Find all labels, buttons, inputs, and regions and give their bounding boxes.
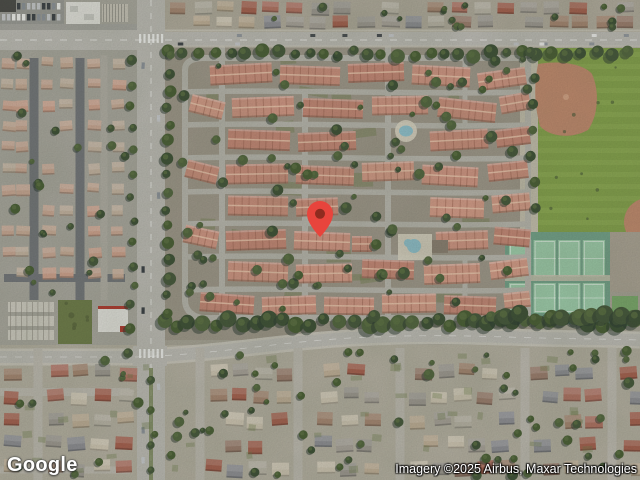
imagery-attribution: Imagery ©2025 Airbus, Maxar Technologies [395,462,637,476]
map-marker-icon[interactable] [306,200,334,238]
marker-pin-dot [315,209,325,219]
satellite-imagery [0,0,640,480]
google-logo[interactable]: Google [7,454,78,477]
marker-pin-body [307,201,333,237]
map-viewport[interactable]: Google Imagery ©2025 Airbus, Maxar Techn… [0,0,640,480]
